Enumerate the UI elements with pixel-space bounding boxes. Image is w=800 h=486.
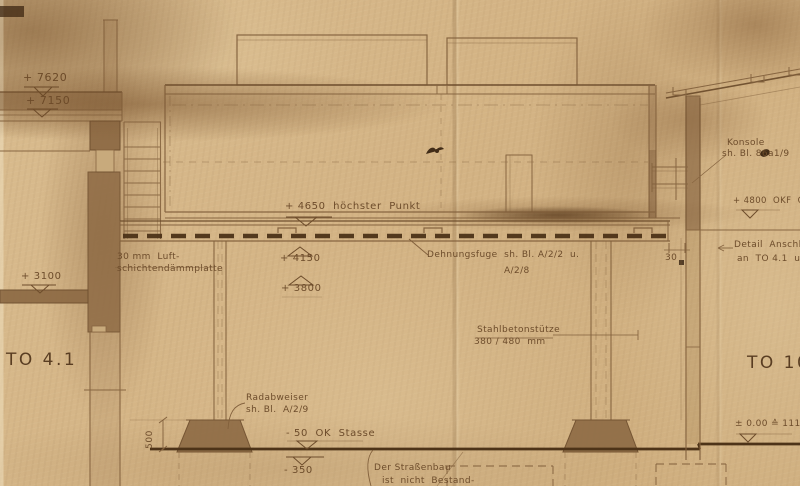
- wall-poche: [686, 96, 700, 230]
- street-note-leader: [368, 450, 373, 486]
- dim-label-500: 500: [146, 430, 156, 449]
- column-plinth-left: [177, 420, 252, 452]
- bridge-beam: [120, 221, 690, 265]
- street-note-line1: Der Straßenbau: [374, 464, 451, 474]
- scanned-section-drawing: + 7620 + 7150 + 3100 TO 4.1 30 mm Luft- …: [0, 0, 800, 486]
- insulation-note-line1: 30 mm Luft-: [117, 253, 180, 263]
- detail-note-line2: an TO 4.1 u. TO: [737, 255, 800, 265]
- detail-note-line1: Detail Anschlu: [734, 241, 800, 251]
- expansion-joint-note-line2: A/2/8: [504, 267, 530, 277]
- street-note-line2: ist nicht Bestand-: [382, 477, 475, 486]
- room-label-to-10: TO 10: [747, 354, 800, 373]
- elevation-label-4650-hoechster-punkt: + 4650 höchster Punkt: [285, 201, 420, 212]
- elevation-label-7150: + 7150: [26, 95, 70, 107]
- floor-slab: [0, 290, 88, 303]
- elevation-label-4150: + 4150: [280, 253, 321, 264]
- street-level-label: - 50 OK Stasse: [286, 428, 375, 439]
- elevation-label-3800: + 3800: [281, 283, 322, 294]
- hall-section: [163, 35, 680, 218]
- room-label-to-41: TO 4.1: [6, 351, 77, 370]
- zero-level-label: ± 0.00 ≙ 111.00: [735, 420, 800, 430]
- elevation-mark-zero: [740, 434, 756, 442]
- elevation-label-3100: + 3100: [21, 271, 62, 282]
- console-note-line2: sh. Bl. 86a1/9: [722, 150, 790, 160]
- elevation-marks: [22, 87, 792, 465]
- column-note-line1: Stahlbetonstütze: [477, 326, 560, 336]
- elevation-mark-minus350: [293, 457, 311, 465]
- elevation-mark-4800: [742, 210, 758, 218]
- elevation-label-7620: + 7620: [23, 72, 67, 84]
- rooftop-housing-left: [237, 35, 427, 85]
- wall-poche: [90, 121, 120, 150]
- dim-label-30: 30: [665, 254, 677, 264]
- level-minus-350-label: - 350: [284, 465, 313, 476]
- wheel-guard-note-line2: sh. Bl. A/2/9: [246, 406, 309, 416]
- expansion-joint-note-line1: Dehnungsfuge sh. Bl. A/2/2 u.: [427, 251, 579, 261]
- corner-stain-mark: [0, 6, 24, 17]
- rooftop-housing-right: [447, 38, 577, 85]
- insulation-note-line2: schichtendämmplatte: [117, 265, 223, 275]
- ink-blot: [426, 147, 444, 154]
- elevation-label-4800-okf-og: + 4800 OKF OG: [733, 197, 800, 206]
- console-note-line1: Konsole: [727, 139, 765, 149]
- column-note-line2: 380 / 480 mm: [474, 338, 546, 348]
- drawing-linework: [0, 0, 800, 486]
- column-plinth-right: [563, 420, 638, 452]
- wheel-guard-note-line1: Radabweiser: [246, 394, 308, 404]
- wall-poche: [88, 172, 120, 332]
